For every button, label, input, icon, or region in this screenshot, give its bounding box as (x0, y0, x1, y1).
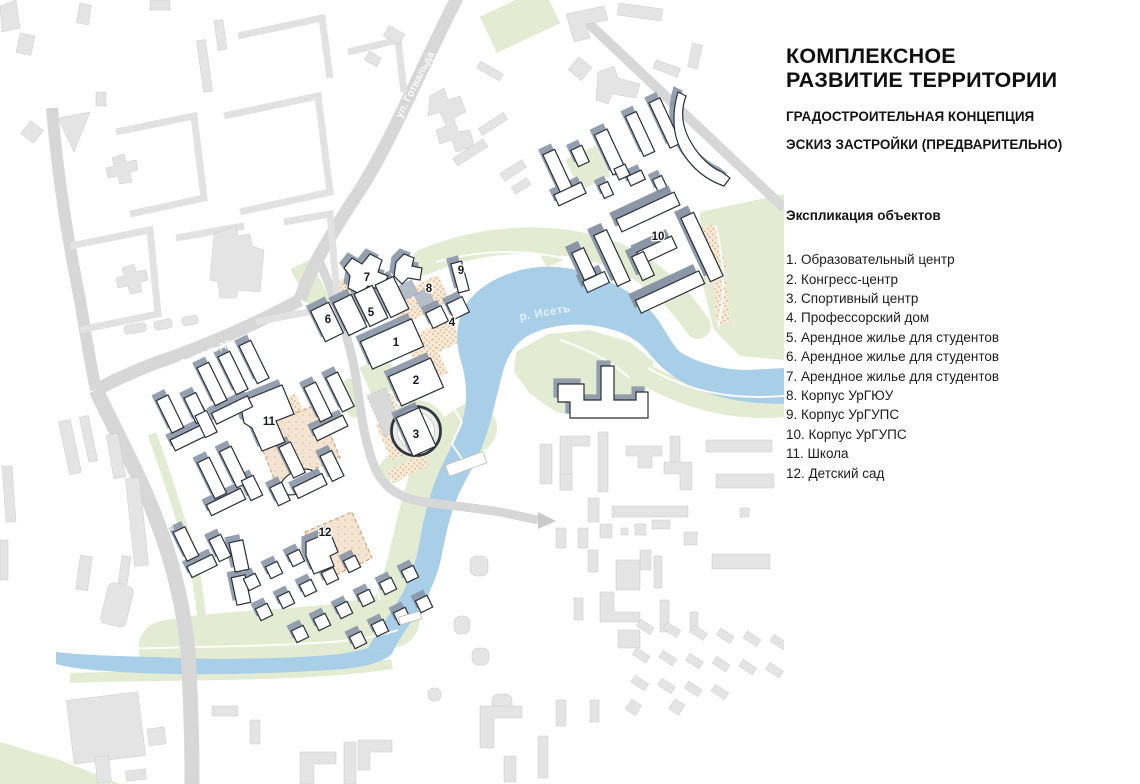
master-plan-map: ул. Готвальда ул. Готвальда ул. Бебеля р… (0, 0, 784, 784)
subtitle-sketch: ЭСКИЗ ЗАСТРОЙКИ (ПРЕДВАРИТЕЛЬНО) (786, 137, 1106, 152)
info-panel: КОМПЛЕКСНОЕ РАЗВИТИЕ ТЕРРИТОРИИ ГРАДОСТР… (786, 44, 1106, 483)
legend-heading: Экспликация объектов (786, 208, 1106, 223)
road-arrow (538, 512, 556, 529)
marker-10: 10 (652, 231, 665, 243)
legend-list: 1. Образовательный центр 2. Конгресс-цен… (786, 250, 1106, 483)
legend-item-5: 5. Арендное жилье для студентов (786, 328, 1106, 347)
legend-item-10: 10. Корпус УрГУПС (786, 425, 1106, 444)
legend-item-7: 7. Арендное жилье для студентов (786, 367, 1106, 386)
legend-item-12: 12. Детский сад (786, 464, 1106, 483)
marker-2: 2 (413, 375, 419, 387)
marker-9: 9 (458, 265, 464, 277)
marker-12: 12 (319, 527, 332, 539)
marker-4: 4 (449, 317, 456, 329)
legend-item-3: 3. Спортивный центр (786, 289, 1106, 308)
masterplan-slide: ул. Готвальда ул. Готвальда ул. Бебеля р… (0, 0, 1140, 784)
page-title: КОМПЛЕКСНОЕ РАЗВИТИЕ ТЕРРИТОРИИ (786, 44, 1071, 92)
legend-item-2: 2. Конгресс-центр (786, 270, 1106, 289)
marker-1: 1 (393, 337, 400, 349)
legend-item-4: 4. Профессорский дом (786, 308, 1106, 327)
marker-7: 7 (364, 272, 370, 284)
subtitle-concept: ГРАДОСТРОИТЕЛЬНАЯ КОНЦЕПЦИЯ (786, 109, 1106, 124)
legend-item-6: 6. Арендное жилье для студентов (786, 347, 1106, 366)
legend-item-11: 11. Школа (786, 444, 1106, 463)
marker-6: 6 (325, 314, 331, 326)
legend-item-9: 9. Корпус УрГУПС (786, 405, 1106, 424)
marker-8: 8 (426, 283, 433, 295)
legend-item-8: 8. Корпус УрГЮУ (786, 386, 1106, 405)
marker-5: 5 (368, 307, 375, 319)
marker-3: 3 (413, 429, 419, 441)
curved-building (674, 92, 730, 186)
marker-11: 11 (263, 416, 276, 428)
legend-item-1: 1. Образовательный центр (786, 250, 1106, 269)
